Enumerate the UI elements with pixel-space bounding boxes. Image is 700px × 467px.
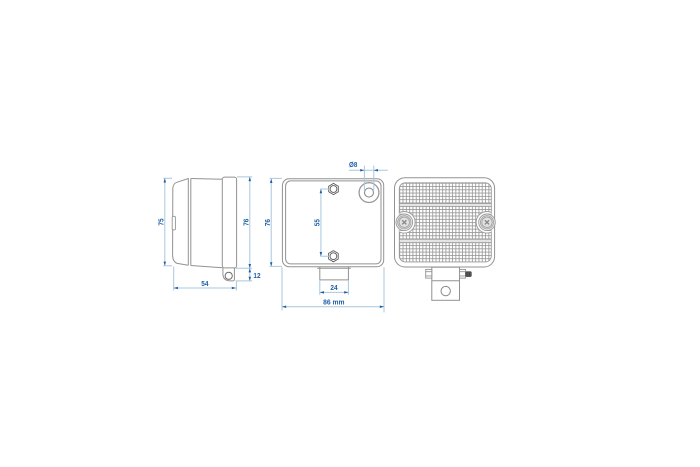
svg-text:24: 24: [330, 283, 338, 292]
svg-text:76: 76: [242, 219, 251, 226]
svg-text:12: 12: [253, 271, 260, 280]
svg-text:75: 75: [156, 218, 165, 226]
svg-text:55: 55: [313, 218, 322, 226]
svg-text:76: 76: [263, 219, 272, 226]
svg-text:54: 54: [201, 279, 209, 288]
svg-text:86 mm: 86 mm: [323, 297, 345, 306]
svg-text:Ø8: Ø8: [349, 160, 357, 169]
